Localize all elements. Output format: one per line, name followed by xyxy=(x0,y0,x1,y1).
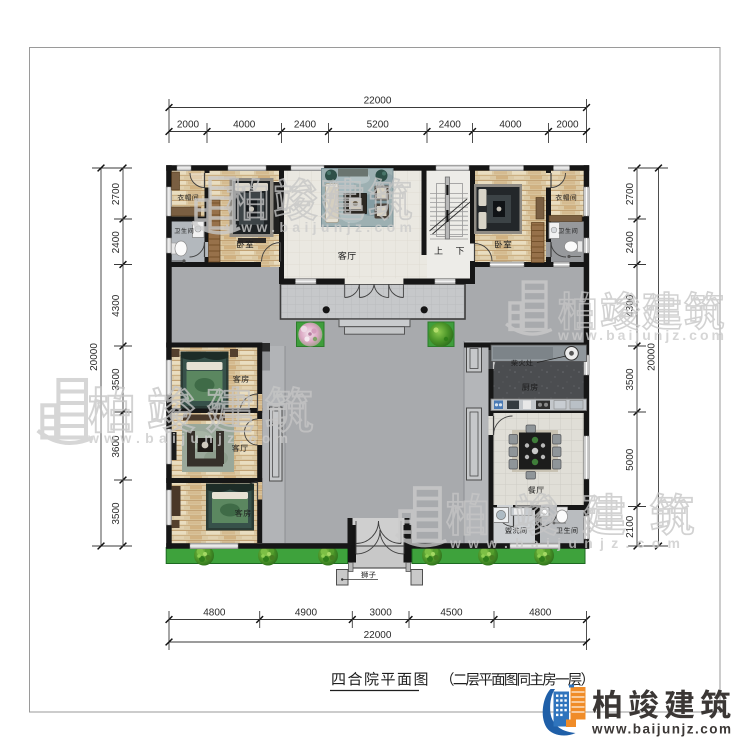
svg-text:4800: 4800 xyxy=(529,608,552,619)
svg-text:2400: 2400 xyxy=(625,231,636,254)
svg-text:2700: 2700 xyxy=(111,182,122,205)
svg-text:2000: 2000 xyxy=(556,120,579,131)
svg-text:4000: 4000 xyxy=(233,120,256,131)
svg-text:3500: 3500 xyxy=(625,368,636,391)
svg-text:4800: 4800 xyxy=(203,608,226,619)
svg-text:20000: 20000 xyxy=(89,343,100,371)
svg-text:5000: 5000 xyxy=(625,448,636,471)
svg-text:2700: 2700 xyxy=(625,182,636,205)
svg-text:22000: 22000 xyxy=(364,630,392,641)
svg-text:2400: 2400 xyxy=(439,120,462,131)
svg-text:3000: 3000 xyxy=(370,608,393,619)
svg-text:20000: 20000 xyxy=(647,343,658,371)
svg-text:2400: 2400 xyxy=(294,120,317,131)
svg-text:5200: 5200 xyxy=(367,120,390,131)
svg-text:4500: 4500 xyxy=(440,608,463,619)
svg-text:4000: 4000 xyxy=(499,120,522,131)
svg-text:2400: 2400 xyxy=(111,231,122,254)
svg-text:4300: 4300 xyxy=(111,294,122,317)
svg-text:4900: 4900 xyxy=(295,608,318,619)
svg-text:22000: 22000 xyxy=(364,96,392,107)
svg-text:2000: 2000 xyxy=(177,120,200,131)
svg-text:3500: 3500 xyxy=(111,502,122,525)
